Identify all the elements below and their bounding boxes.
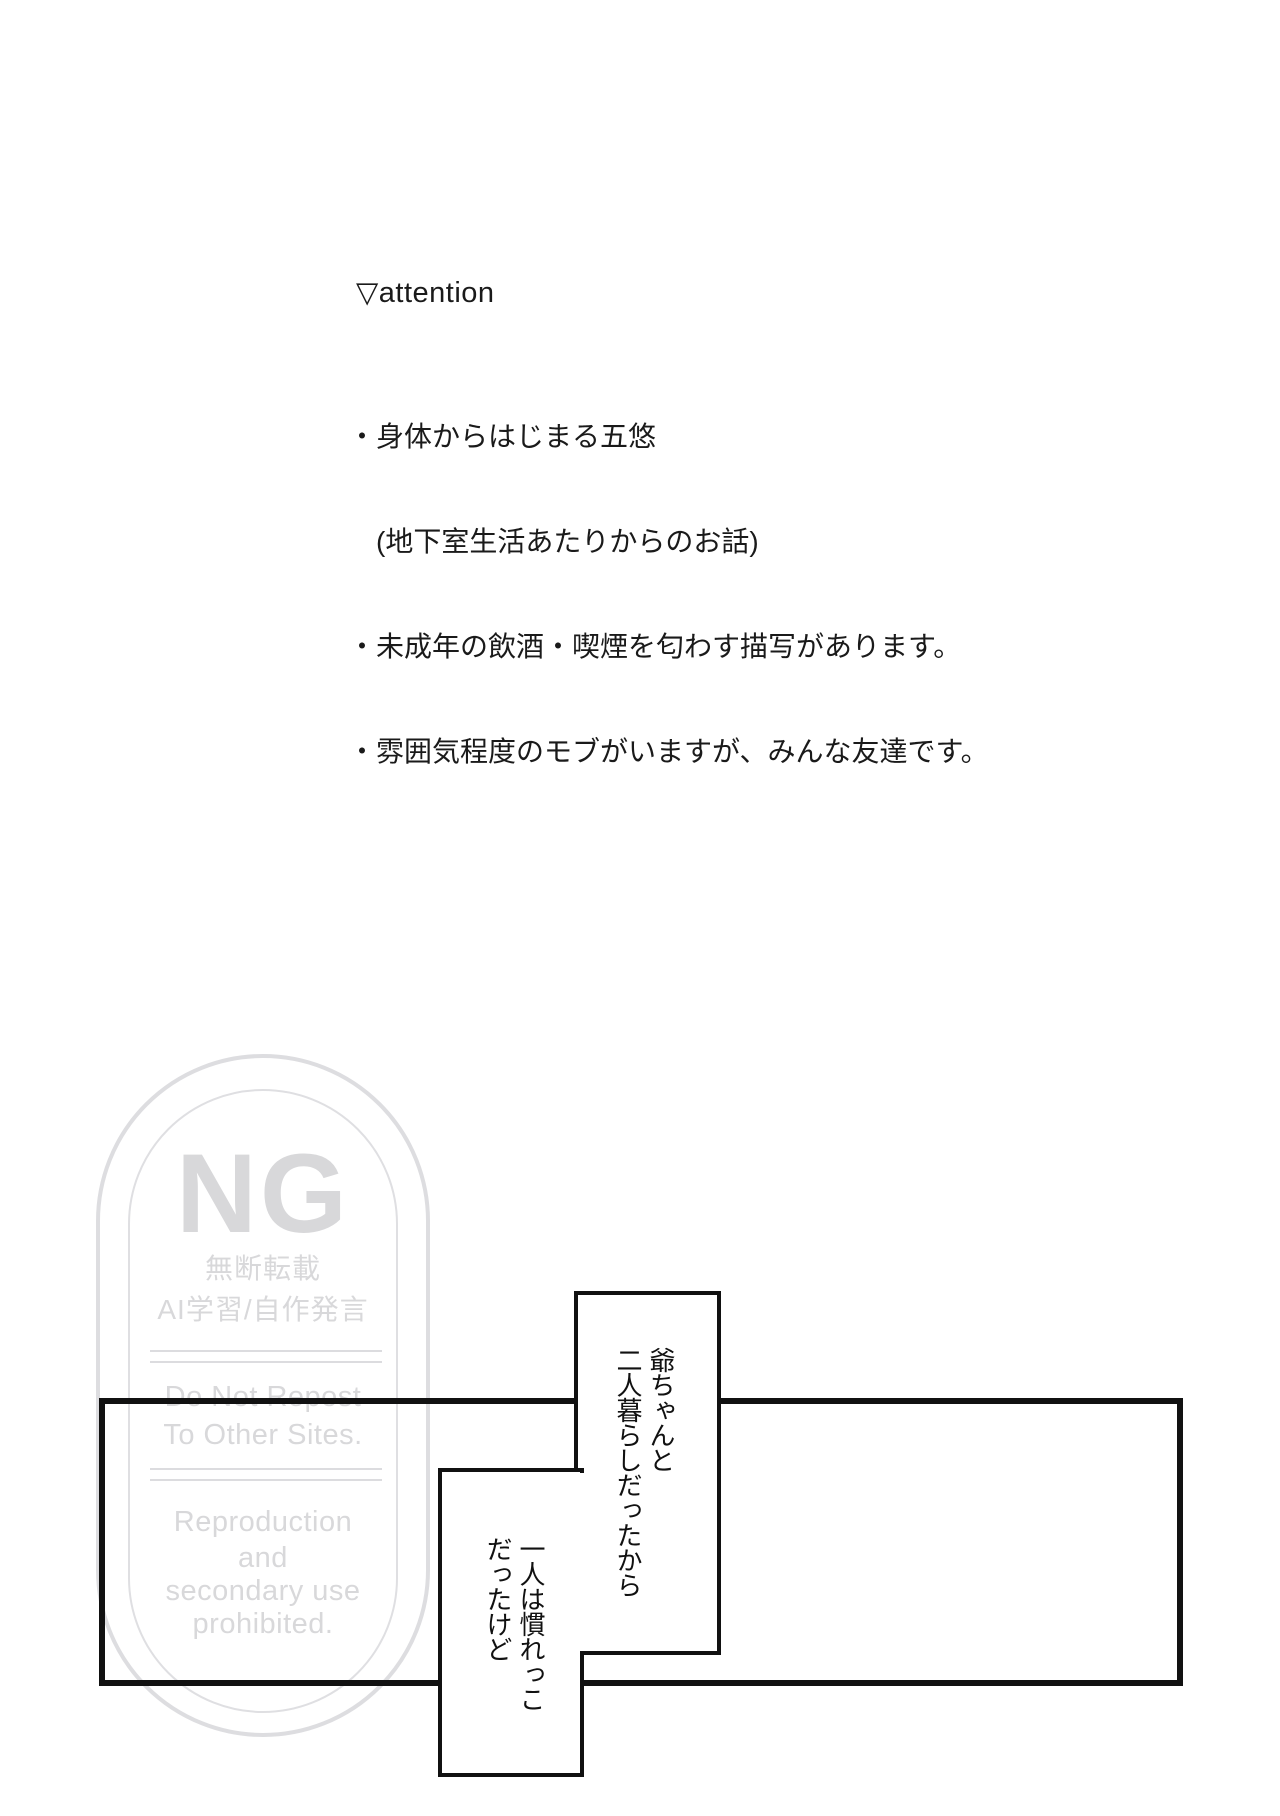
attention-notes: ・身体からはじまる五悠 (地下室生活あたりからのお話) ・未成年の飲酒・喫煙を匂… — [348, 349, 989, 839]
watermark-jp-line-2: AI学習/自作発言 — [100, 1293, 426, 1327]
speech-bubble-2-text: 一人は慣れっこ だったけど — [442, 1472, 580, 1773]
speech-bubble-1-text: 爺ちゃんと 二人暮らしだったから — [578, 1295, 717, 1651]
attention-title: ▽attention — [356, 276, 495, 310]
speech-bubble-1: 爺ちゃんと 二人暮らしだったから — [574, 1291, 721, 1655]
speech-bubble-2: 一人は慣れっこ だったけど — [438, 1468, 584, 1777]
attention-note-line: ・未成年の飲酒・喫煙を匂わす描写があります。 — [348, 629, 989, 664]
speech-line: 二人暮らしだったから — [611, 1347, 644, 1651]
bubble-merge-patch — [577, 1473, 585, 1651]
attention-note-line: (地下室生活あたりからのお話) — [348, 524, 989, 559]
watermark-divider — [150, 1350, 382, 1363]
speech-line: 爺ちゃんと — [644, 1347, 677, 1651]
speech-line: 一人は慣れっこ — [514, 1536, 547, 1773]
attention-note-line: ・雰囲気程度のモブがいますが、みんな友達です。 — [348, 734, 989, 769]
ng-watermark-label: NG — [100, 1138, 426, 1250]
speech-line: だったけど — [481, 1536, 514, 1773]
doujinshi-page: ▽attention ・身体からはじまる五悠 (地下室生活あたりからのお話) ・… — [0, 0, 1280, 1816]
attention-note-line: ・身体からはじまる五悠 — [348, 419, 989, 454]
watermark-jp-line-1: 無断転載 — [100, 1252, 426, 1286]
